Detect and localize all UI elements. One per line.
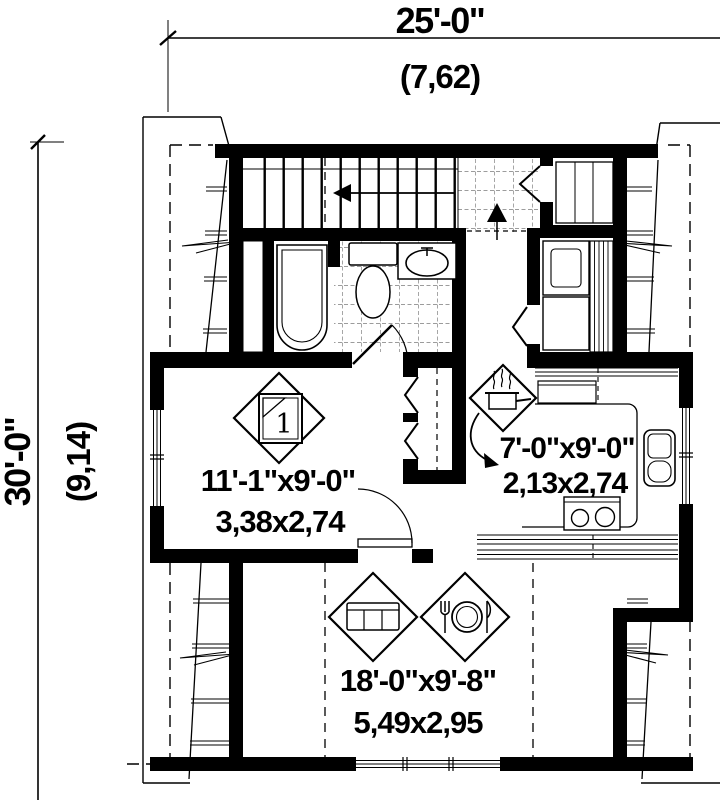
kitchen-size-imperial: 7'-0"x9'-0" xyxy=(499,432,634,465)
floor-plan-canvas: 25'-0" (7,62) 30'-0" (9,14) xyxy=(0,0,720,800)
living-room-window xyxy=(356,757,500,771)
bifold-door-icon xyxy=(405,377,418,413)
bedroom-window xyxy=(150,410,164,506)
eave-shelves-left-upper xyxy=(203,187,227,333)
dishwasher xyxy=(538,381,596,403)
width-metric: (7,62) xyxy=(400,58,480,95)
bedroom-door xyxy=(358,489,412,547)
top-dimension: 25'-0" (7,62) xyxy=(160,0,720,112)
floor-plan-page: 25'-0" (7,62) 30'-0" (9,14) xyxy=(0,0,720,800)
depth-imperial: 30'-0" xyxy=(0,418,38,507)
depth-metric: (9,14) xyxy=(60,422,97,502)
roof-outline-left xyxy=(127,117,238,783)
cooking-icon xyxy=(470,365,536,431)
louver-door xyxy=(590,241,613,352)
kitchen-size-metric: 2,13x2,74 xyxy=(503,467,629,500)
living-size-imperial: 18'-0"x9'-8" xyxy=(340,663,496,698)
bed-icon: 1 xyxy=(234,373,324,463)
bathtub xyxy=(277,245,327,350)
left-dimension: 30'-0" (9,14) xyxy=(0,135,97,800)
stove xyxy=(564,497,620,530)
eave-shelves-left-lower xyxy=(190,599,229,745)
kitchen-sink xyxy=(644,430,675,486)
dryer xyxy=(543,297,589,350)
bifold-door-icon xyxy=(405,423,418,459)
dining-icon xyxy=(421,573,509,661)
kitchen-label: 7'-0"x9'-0" 2,13x2,74 xyxy=(499,432,634,500)
bedroom-size-imperial: 11'-1"x9'-0" xyxy=(201,463,356,498)
width-imperial: 25'-0" xyxy=(396,0,485,41)
bed-number: 1 xyxy=(275,409,292,440)
pot xyxy=(489,393,516,409)
sofa-icon xyxy=(329,573,417,661)
vanity-sink xyxy=(398,243,456,279)
bifold-door-icon xyxy=(513,307,527,346)
living-size-metric: 5,49x2,95 xyxy=(354,705,484,740)
laundry-closet xyxy=(543,241,613,352)
bedroom-size-metric: 3,38x2,74 xyxy=(216,504,347,539)
bedroom-label: 11'-1"x9'-0" 3,38x2,74 xyxy=(201,463,356,539)
linen-chase xyxy=(243,241,263,352)
top-closet xyxy=(556,162,613,223)
kitchen-window xyxy=(679,408,693,504)
break-line-left-lower xyxy=(180,652,236,665)
living-dining-label: 18'-0"x9'-8" 5,49x2,95 xyxy=(340,663,496,740)
